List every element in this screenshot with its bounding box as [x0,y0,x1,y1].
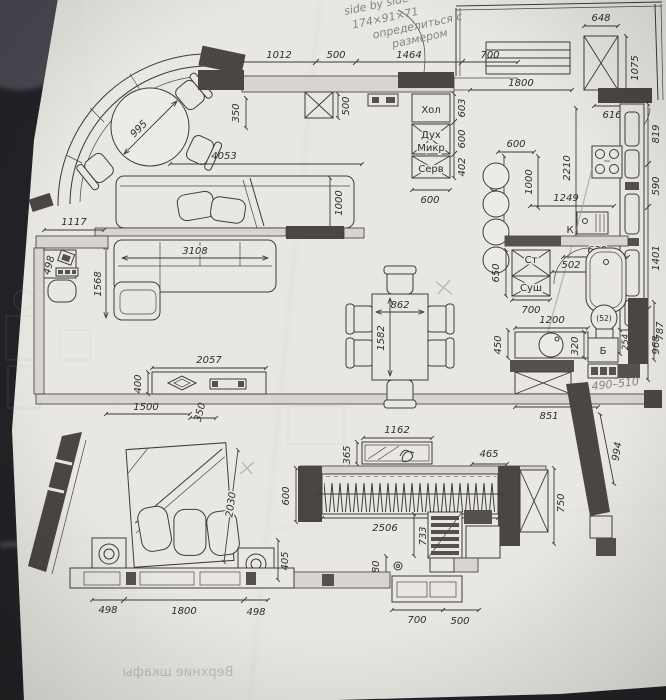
floor-plan-photo: Верхние шкафы 995 1012 500 1464 [0,0,666,700]
floor-plan-canvas: Верхние шкафы 995 1012 500 1464 [0,0,666,700]
photo-vignette [0,0,666,700]
